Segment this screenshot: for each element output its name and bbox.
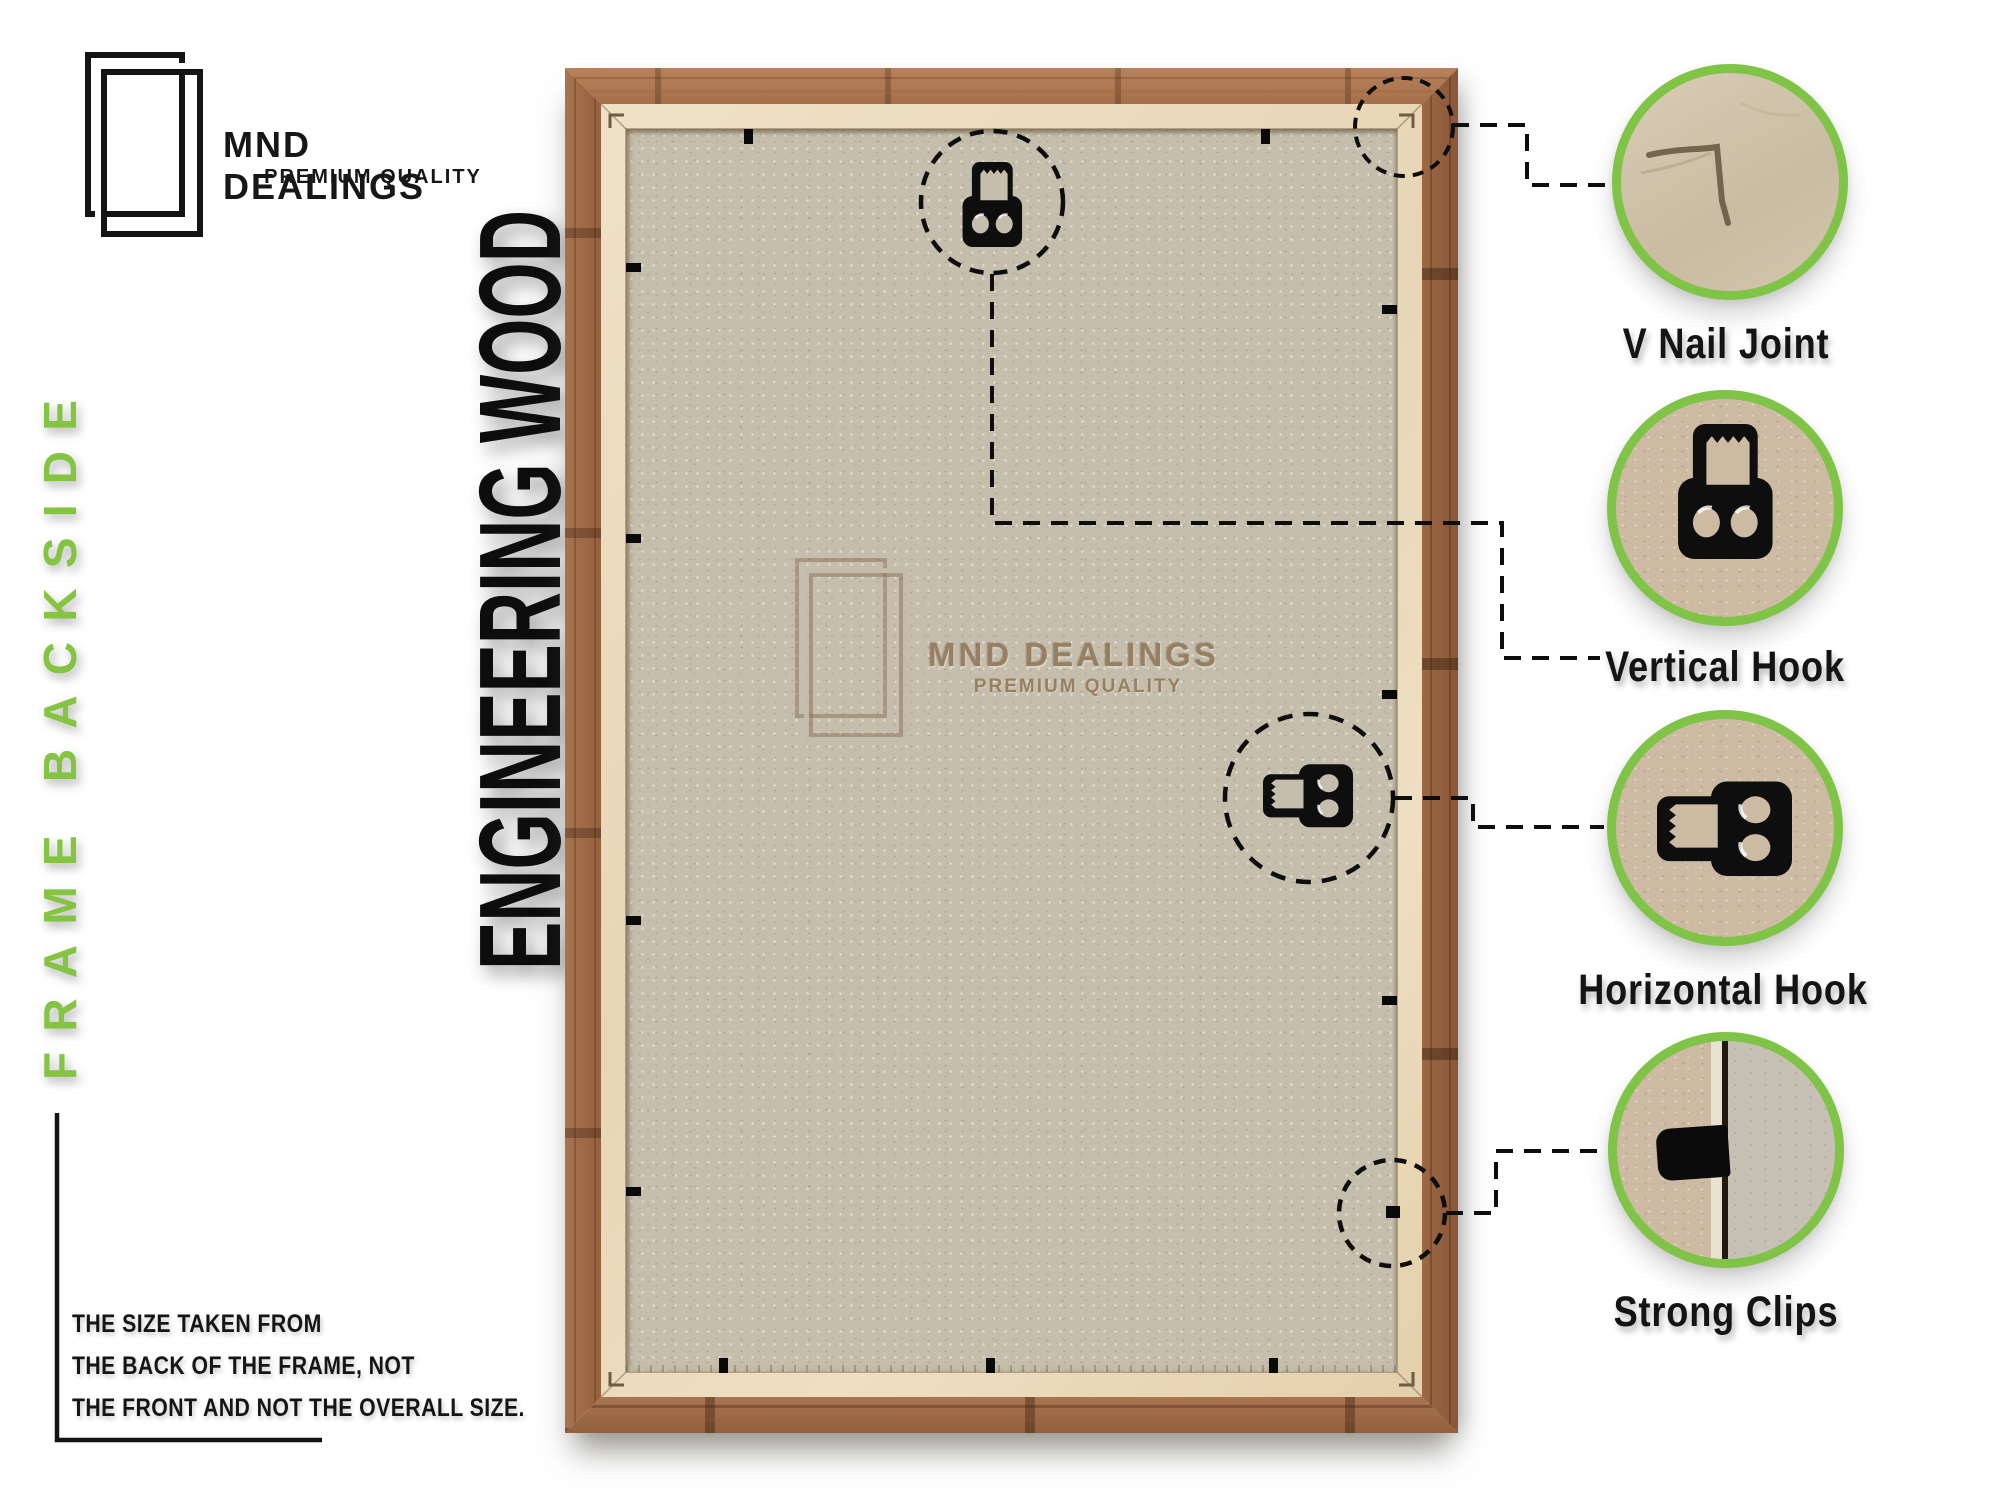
frame-backside-vertical-label-svg: FRAME BACKSIDE [0,370,120,1110]
connector-strong-clips [1446,1151,1605,1213]
frame-clip [1382,305,1397,314]
watermark-name: MND DEALINGS [928,636,1228,674]
size-note-line1: THE SIZE TAKEN FROM [72,1303,525,1345]
v-nail-joint-label: V Nail Joint [1541,320,1911,369]
frame-wood-right [1422,68,1458,1433]
product-infographic: MND DEALINGS PREMIUM QUALITY FRAME BACKS… [0,0,2000,1500]
watermark-tagline: PREMIUM QUALITY [928,676,1228,698]
frame-clip [626,916,641,925]
frame-backside-label: FRAME BACKSIDE [34,400,86,1080]
frame-clip [626,534,641,543]
size-note-line3: THE FRONT AND NOT THE OVERALL SIZE. [72,1387,525,1429]
strong-clips-label: Strong Clips [1541,1288,1911,1337]
brand-logo-frame-front-icon [101,69,203,237]
frame-clip [1382,996,1397,1005]
frame-strong-clip [1386,1206,1400,1218]
frame-clip [626,263,641,272]
frame-wood-bottom [565,1397,1458,1433]
backing-bottom-teeth [626,1365,1397,1372]
frame-rebate-area [1728,1032,1844,1268]
v-nail-joint-groove-icon [1621,73,1839,291]
horizontal-hook-photo-circle [1607,710,1843,946]
frame-clip [1382,690,1397,699]
frame-wood-left [565,68,601,1433]
frame-clip [986,1358,995,1373]
strong-clip-icon [1655,1125,1730,1182]
frame-mdf-backing [626,129,1397,1372]
frame-clip [719,1358,728,1373]
frame-clip [626,1187,641,1196]
vertical-hook-label: Vertical Hook [1540,643,1910,692]
watermark-logo-frame-front-icon [809,573,903,737]
strong-clips-photo-circle [1608,1032,1844,1268]
frame-clip [744,129,753,144]
vertical-hook-photo-circle [1607,390,1843,626]
v-nail-joint-photo-circle [1612,64,1848,300]
size-note-line2: THE BACK OF THE FRAME, NOT [72,1345,525,1387]
frame-clip [1261,129,1270,144]
frame-clip [1269,1358,1278,1373]
horizontal-hook-label: Horizontal Hook [1538,966,1908,1015]
frame-wood-top [565,68,1458,104]
connector-v-nail-joint [1452,125,1607,185]
frame-backside-photo [565,68,1458,1433]
size-note: THE SIZE TAKEN FROM THE BACK OF THE FRAM… [72,1303,525,1429]
